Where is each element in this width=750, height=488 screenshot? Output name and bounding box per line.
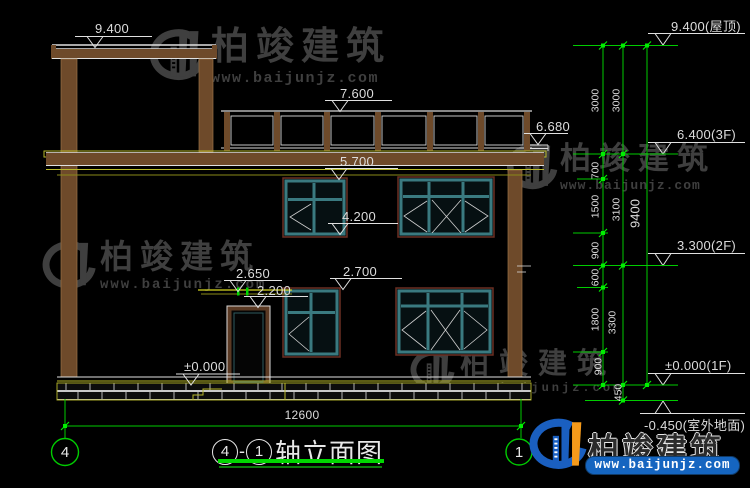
window-2f-left (283, 178, 347, 237)
window-1f-left (283, 288, 340, 357)
elevation-label-railing: 7.600 (340, 86, 374, 101)
floor-band (44, 151, 546, 175)
grid-level-1f: ±0.000(1F) (665, 358, 732, 373)
right-cornice (530, 145, 548, 151)
title-underline-shadow (219, 466, 382, 468)
left-column (61, 59, 77, 377)
plinth (57, 377, 531, 400)
title-underline (218, 459, 384, 463)
dim-inner-3000: 3000 (588, 78, 603, 122)
grid-elevation-markers (640, 34, 745, 414)
elevation-label-roof: 9.400 (95, 21, 129, 36)
title-text: 轴立面图 (275, 433, 383, 470)
dim-total-height: 9400 (628, 188, 643, 238)
elevation-label-1f-window-top: 2.700 (343, 264, 377, 279)
elevation-label-canopy: 2.650 (236, 266, 270, 281)
roof-slab (51, 45, 217, 59)
dimension-nodes (63, 44, 649, 429)
dimension-lines (52, 46, 679, 466)
right-column (508, 170, 522, 377)
dim-inner-1500: 1500 (588, 184, 603, 228)
elevation-label-eave: 6.680 (536, 119, 570, 134)
dim-mid-3100: 3100 (609, 187, 624, 231)
window-2f-right (398, 177, 494, 237)
dim-mid-450: 450 (611, 370, 626, 414)
dim-inner-900b: 900 (591, 344, 606, 388)
grid-level-roof: 9.400(屋顶) (671, 16, 741, 35)
dim-inner-600: 600 (588, 255, 603, 299)
elevation-label-2f-window-top: 5.700 (340, 154, 374, 169)
entry-door (227, 306, 270, 385)
grid-level-2f: 3.300(2F) (677, 238, 736, 253)
axis-bubble-1: 1 (508, 444, 530, 461)
grid-level-3f: 6.400(3F) (677, 127, 736, 142)
baijun-logo-icon (528, 418, 590, 476)
window-1f-right (396, 288, 493, 355)
dim-mid-3000: 3000 (609, 78, 624, 122)
elevation-label-floor: ±0.000 (184, 359, 225, 374)
terrace-column (199, 59, 213, 152)
elevation-label-2f-sill: 4.200 (342, 209, 376, 224)
baijun-brand-logo: 柏竣建筑 www.baijunjz.com (528, 418, 590, 481)
logo-url-banner: www.baijunjz.com (585, 456, 740, 475)
axis-bubble-4: 4 (54, 444, 76, 461)
elevation-label-door-top: 2.200 (257, 283, 291, 298)
drawing-title: 4 - 1 轴立面图 (212, 433, 383, 470)
dim-total-width: 12600 (272, 408, 332, 422)
cad-elevation-canvas: 柏竣建筑 www.baijunjz.com 柏竣建筑 www.baijunjz.… (0, 0, 750, 488)
dim-mid-3300: 3300 (605, 300, 620, 344)
dim-inner-1800: 1800 (588, 297, 603, 341)
elevation-drawing-linework (0, 0, 750, 488)
